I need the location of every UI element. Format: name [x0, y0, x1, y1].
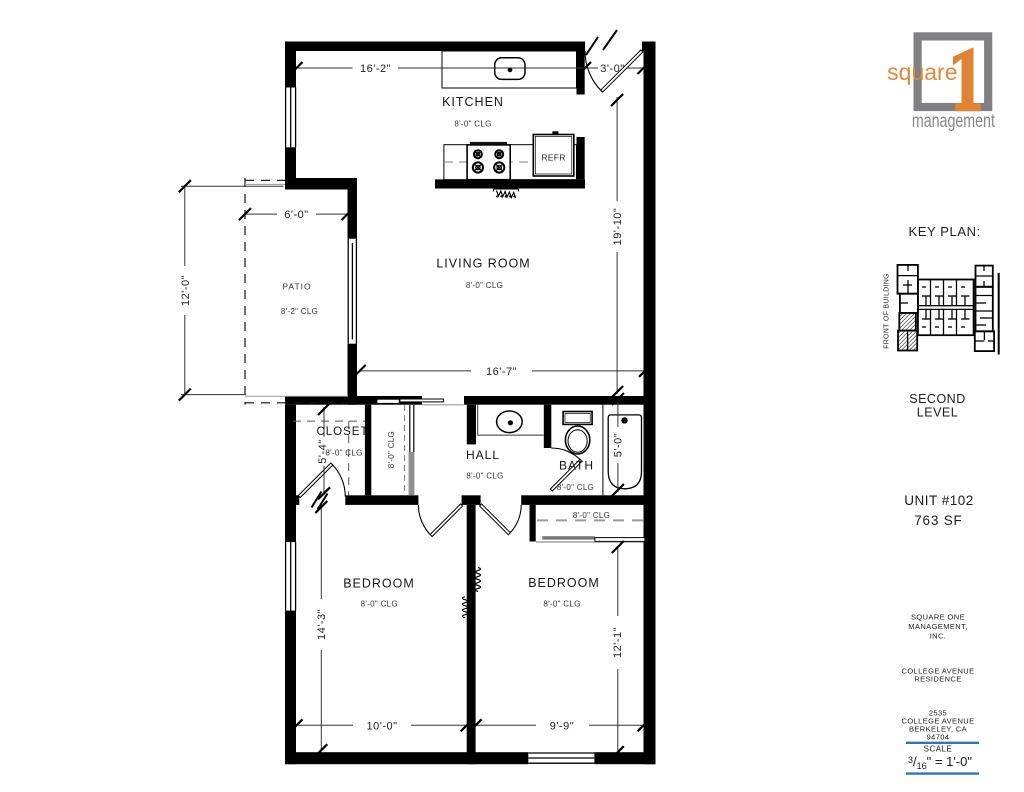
svg-text:8'-0" CLG: 8'-0" CLG [361, 600, 398, 609]
svg-text:8'-2" CLG: 8'-2" CLG [281, 307, 318, 316]
svg-text:8'-0" CLG: 8'-0" CLG [387, 431, 396, 468]
svg-text:12'-1": 12'-1" [612, 627, 624, 658]
svg-text:INC.: INC. [930, 632, 947, 641]
svg-text:RESIDENCE: RESIDENCE [914, 675, 961, 684]
svg-text:5'-0": 5'-0" [612, 433, 624, 457]
svg-text:3/16" = 1'-0": 3/16" = 1'-0" [908, 754, 972, 771]
svg-text:19'-10": 19'-10" [612, 208, 624, 246]
svg-text:REFR: REFR [541, 153, 565, 163]
svg-text:LIVING ROOM: LIVING ROOM [436, 257, 530, 271]
svg-text:SECOND: SECOND [909, 392, 965, 406]
svg-text:management: management [912, 110, 995, 132]
svg-text:8'-0" CLG: 8'-0" CLG [557, 483, 594, 492]
svg-text:8'-0" CLG: 8'-0" CLG [454, 120, 491, 129]
svg-text:BEDROOM: BEDROOM [343, 577, 415, 591]
svg-text:9'-9": 9'-9" [550, 721, 574, 733]
svg-text:BATH: BATH [559, 459, 594, 473]
svg-text:8'-0" CLG: 8'-0" CLG [543, 600, 580, 609]
svg-text:8'-0" CLG: 8'-0" CLG [325, 449, 362, 458]
svg-text:HALL: HALL [466, 448, 500, 462]
svg-text:16'-2": 16'-2" [360, 63, 391, 75]
svg-text:MANAGEMENT,: MANAGEMENT, [908, 622, 967, 631]
svg-text:SQUARE ONE: SQUARE ONE [911, 613, 965, 622]
svg-text:BEDROOM: BEDROOM [528, 576, 600, 590]
svg-text:14'-3": 14'-3" [316, 609, 328, 640]
svg-text:square: square [887, 59, 957, 85]
svg-text:8'-0" CLG: 8'-0" CLG [573, 511, 610, 520]
svg-text:SCALE: SCALE [924, 745, 953, 754]
svg-text:PATIO: PATIO [282, 282, 311, 292]
svg-text:LEVEL: LEVEL [917, 406, 958, 420]
svg-text:KITCHEN: KITCHEN [442, 95, 504, 109]
svg-text:3'-0": 3'-0" [600, 63, 624, 75]
svg-text:KEY PLAN:: KEY PLAN: [909, 224, 981, 239]
svg-text:10'-0": 10'-0" [366, 721, 397, 733]
svg-text:16'-7": 16'-7" [486, 366, 517, 378]
svg-text:6'-0": 6'-0" [284, 209, 308, 221]
svg-text:UNIT #102: UNIT #102 [904, 493, 974, 508]
svg-text:CLOSET: CLOSET [316, 426, 368, 438]
svg-text:FRONT OF BUILDING: FRONT OF BUILDING [884, 273, 891, 349]
svg-text:94704: 94704 [927, 733, 950, 742]
svg-text:8'-0" CLG: 8'-0" CLG [466, 472, 503, 481]
svg-text:763 SF: 763 SF [914, 513, 962, 528]
svg-text:12'-0": 12'-0" [180, 275, 192, 306]
svg-text:8'-0" CLG: 8'-0" CLG [466, 281, 503, 290]
